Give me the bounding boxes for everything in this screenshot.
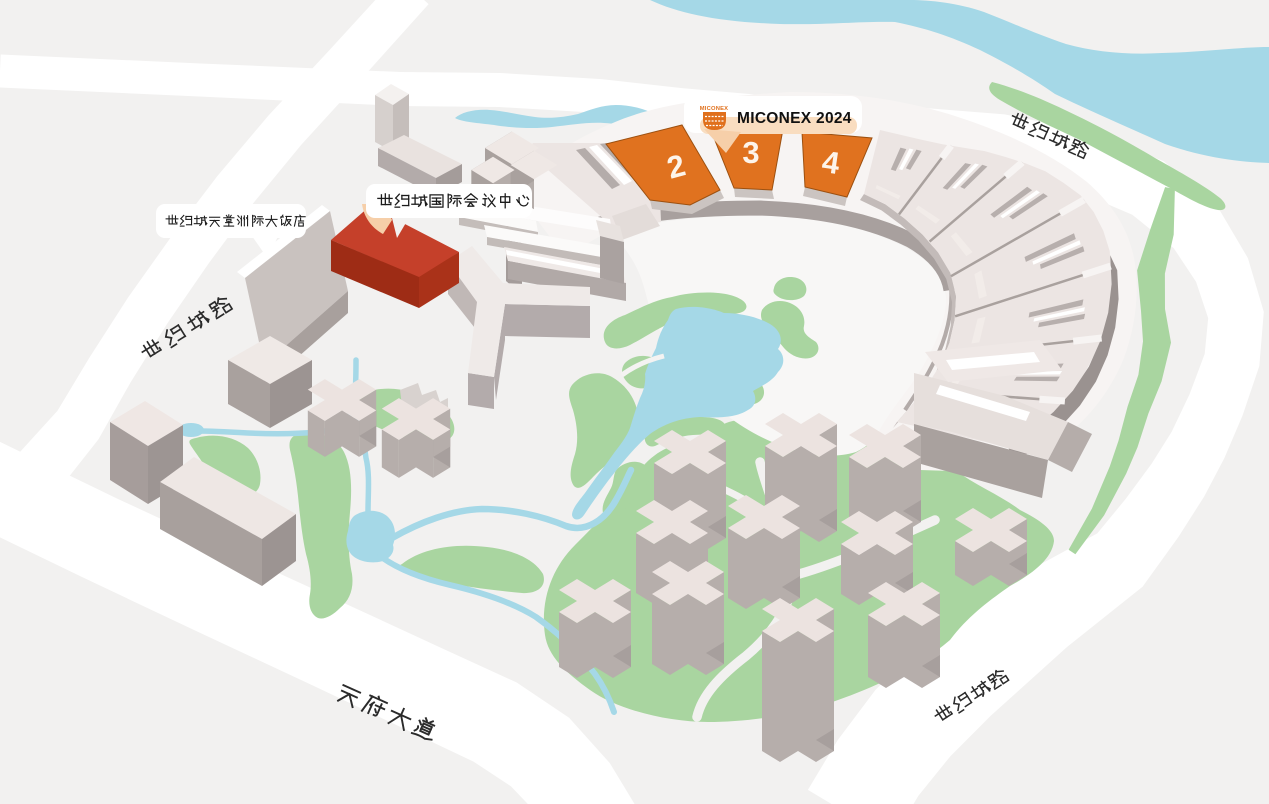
svg-text:3: 3 <box>742 135 759 170</box>
svg-text:MICONEX 2024: MICONEX 2024 <box>737 110 852 127</box>
svg-text:MICONEX: MICONEX <box>700 106 728 112</box>
